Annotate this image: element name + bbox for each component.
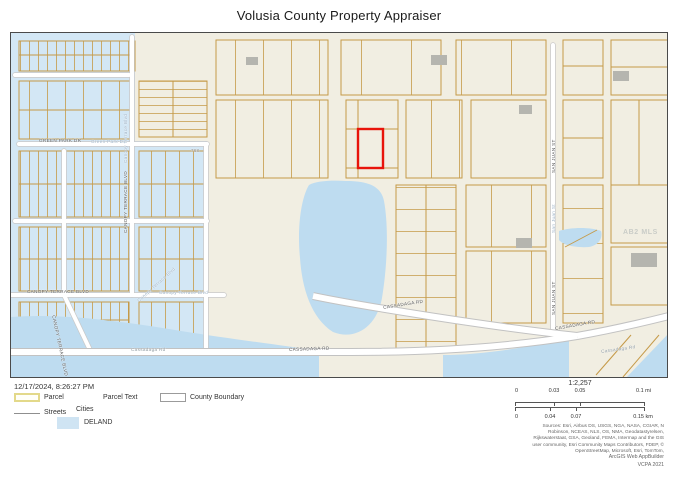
street-label-green-park-dr: GREEN PARK DR xyxy=(39,139,81,144)
map-credits: Sources: Esri, Airbus DS, USGS, NGA, NAS… xyxy=(530,424,664,455)
street-label-green-park-dr-light: Green Park Dr xyxy=(91,140,125,145)
km-tick-2: 0.07 xyxy=(571,414,582,420)
map-frame: GREEN PARK DR Green Park Dr CANOPY TERRA… xyxy=(10,32,668,378)
scale-mi-labels: 0 0.03 0.05 0.1 mi xyxy=(515,387,661,395)
watermark: AB2 MLS xyxy=(623,229,658,236)
legend-label-county-boundary: County Boundary xyxy=(190,394,244,401)
app-credit-appbuilder: ArcGIS Web AppBuilder xyxy=(530,454,664,462)
street-label-san-juan-upper: SAN JUAN ST xyxy=(552,139,557,173)
page-title: Volusia County Property Appraiser xyxy=(0,8,678,23)
legend-label-parcel-text: Parcel Text xyxy=(103,394,138,401)
scale-bar-mi xyxy=(515,395,645,405)
scale-block: 1:2,257 0 0.03 0.05 0.1 mi 0 0.04 0.07 xyxy=(515,380,661,422)
street-label-canopy-terrace-vertical: CANOPY TERRACE BLVD xyxy=(124,171,129,233)
road-label-cassadaga-left: Cassadaga Rd xyxy=(131,348,166,353)
print-page: Volusia County Property Appraiser xyxy=(0,0,678,480)
mi-tick-3: 0.1 mi xyxy=(636,388,651,394)
km-tick-3: 0.15 km xyxy=(633,414,653,420)
streets-legend-swatch xyxy=(14,413,40,414)
timestamp: 12/17/2024, 8:26:27 PM xyxy=(14,382,94,391)
scale-bar-km xyxy=(515,405,645,414)
app-credit: ArcGIS Web AppBuilder VCPA 2021 xyxy=(530,454,664,469)
legend-label-parcel: Parcel xyxy=(44,394,64,401)
street-label-canopy-terrace-horizontal: CANOPY TERRACE BLVD xyxy=(27,290,89,295)
parcel-text-768: 768 xyxy=(191,149,199,154)
county-boundary-legend-swatch xyxy=(160,393,186,402)
app-credit-org: VCPA 2021 xyxy=(530,462,664,470)
legend-label-deland: DELAND xyxy=(84,419,112,426)
km-tick-0: 0 xyxy=(515,414,518,420)
deland-legend-swatch xyxy=(57,417,79,429)
scale-km-labels: 0 0.04 0.07 0.15 km xyxy=(515,414,661,422)
street-label-san-juan-lower: SAN JUAN ST xyxy=(552,281,557,315)
street-label-san-juan-light: San Juan St xyxy=(552,204,557,233)
street-label-canopy-terrace-vertical-light: Canopy Terrace Blvd xyxy=(124,114,129,163)
street-label-canopy-terrace-horizontal-light: Canopy Terrace Blvd xyxy=(159,291,208,296)
mi-tick-2: 0.05 xyxy=(575,388,586,394)
legend-label-cities: Cities xyxy=(76,406,94,413)
mi-tick-0: 0 xyxy=(515,388,518,394)
legend-label-streets: Streets xyxy=(44,409,66,416)
parcel-legend-swatch xyxy=(14,393,40,402)
mi-tick-1: 0.03 xyxy=(549,388,560,394)
km-tick-1: 0.04 xyxy=(545,414,556,420)
scale-ratio: 1:2,257 xyxy=(515,380,645,387)
footer: 12/17/2024, 8:26:27 PM Parcel Parcel Tex… xyxy=(0,378,678,480)
